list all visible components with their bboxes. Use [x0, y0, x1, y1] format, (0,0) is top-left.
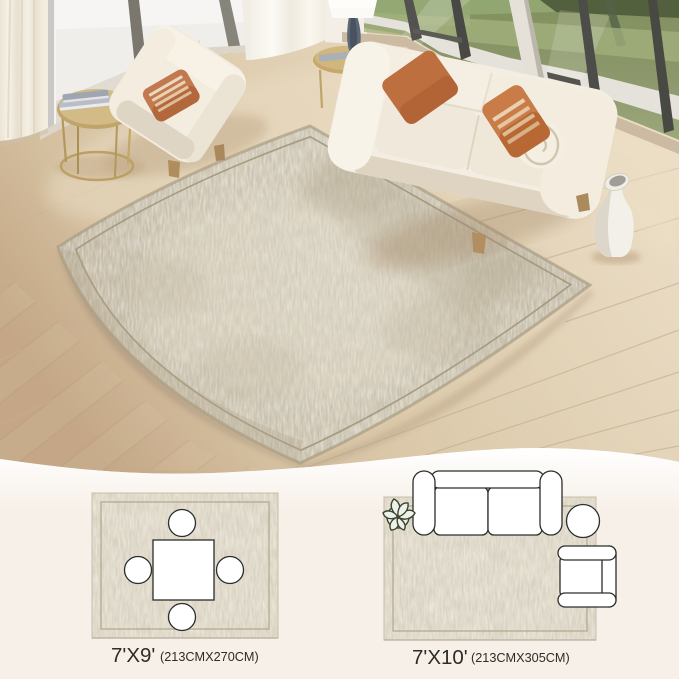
svg-text:(213CMX305CM): (213CMX305CM)	[471, 651, 570, 665]
svg-text:(213CMX270CM): (213CMX270CM)	[160, 650, 259, 664]
svg-text:7'X10': 7'X10'	[412, 646, 468, 669]
svg-text:7'X9': 7'X9'	[111, 644, 155, 667]
